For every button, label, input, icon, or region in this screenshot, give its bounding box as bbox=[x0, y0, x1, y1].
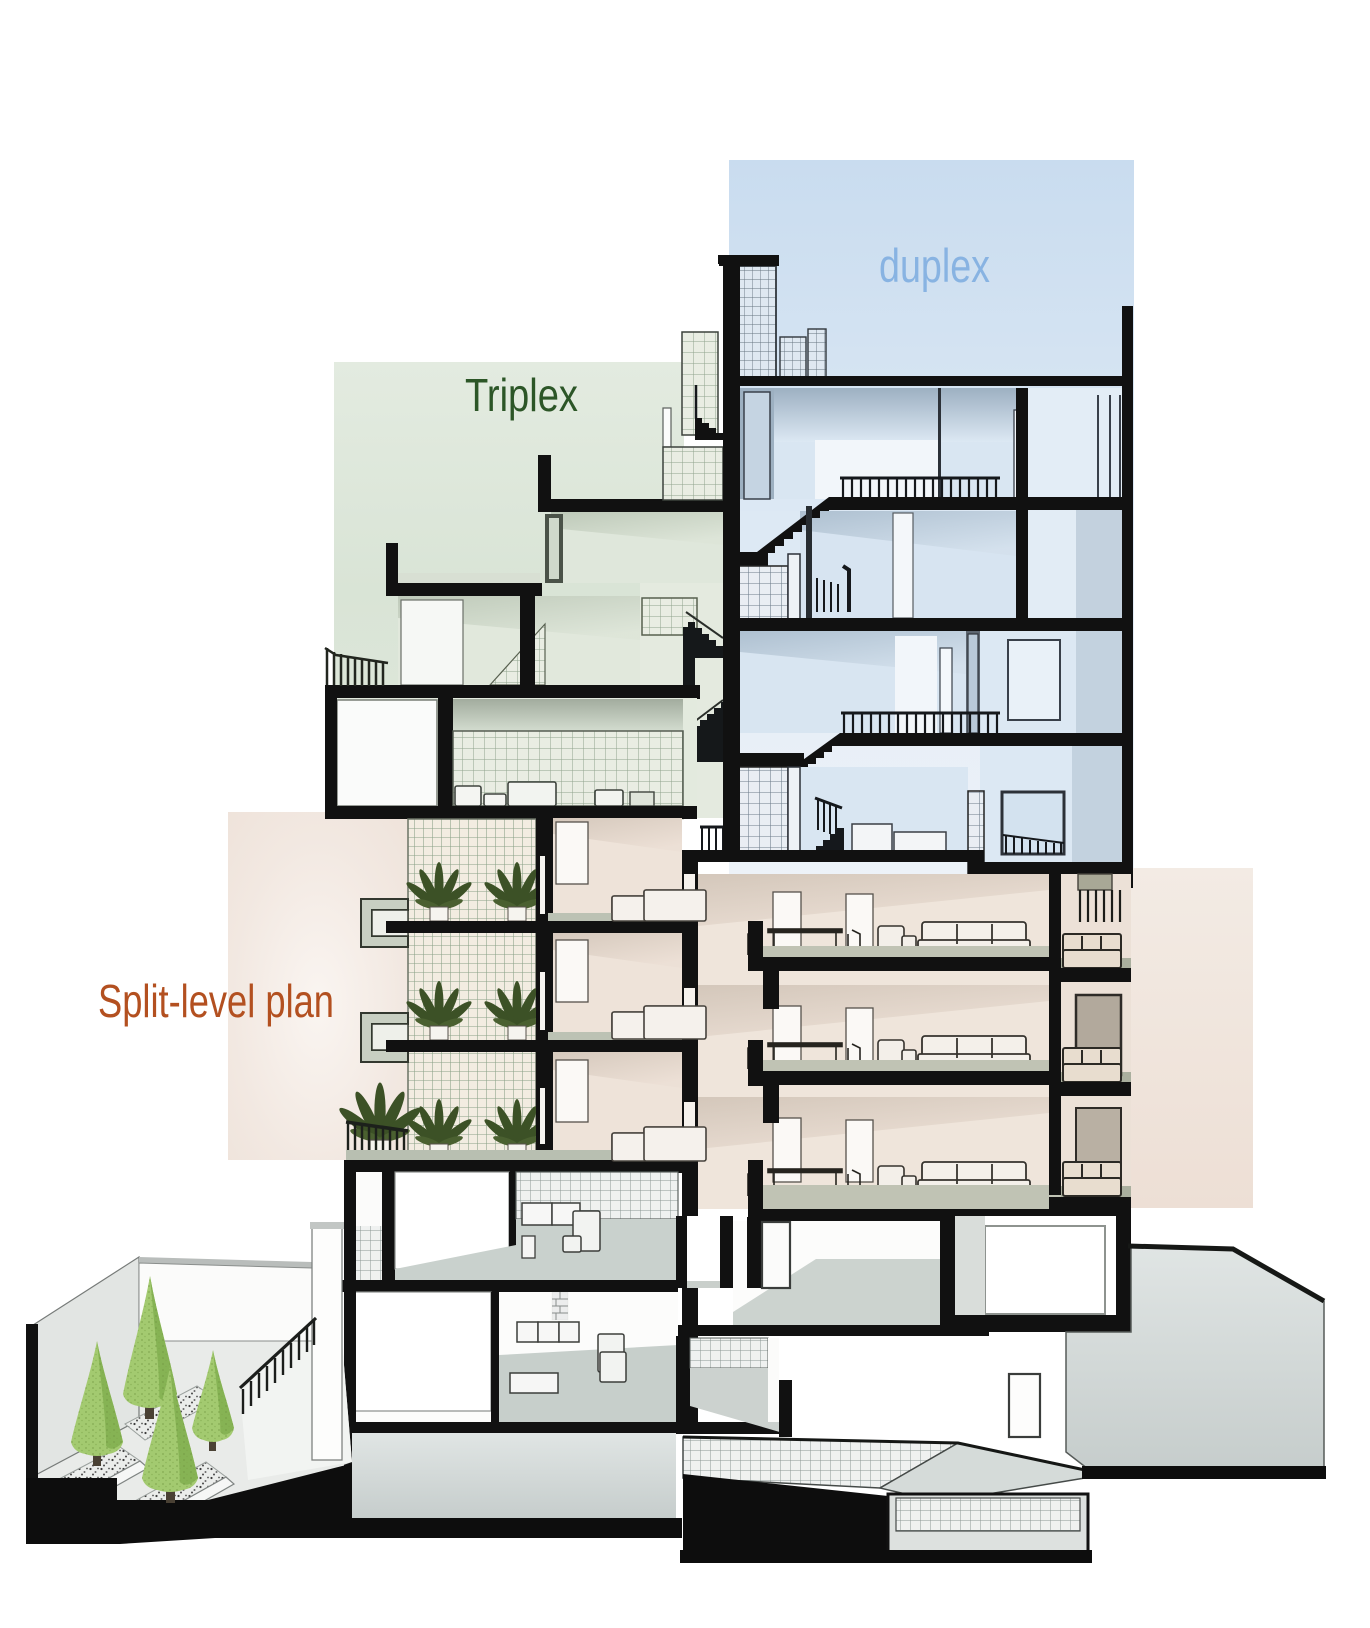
svg-text:Split-level plan: Split-level plan bbox=[98, 975, 334, 1027]
svg-text:duplex: duplex bbox=[879, 239, 990, 292]
svg-text:Triplex: Triplex bbox=[465, 369, 578, 421]
